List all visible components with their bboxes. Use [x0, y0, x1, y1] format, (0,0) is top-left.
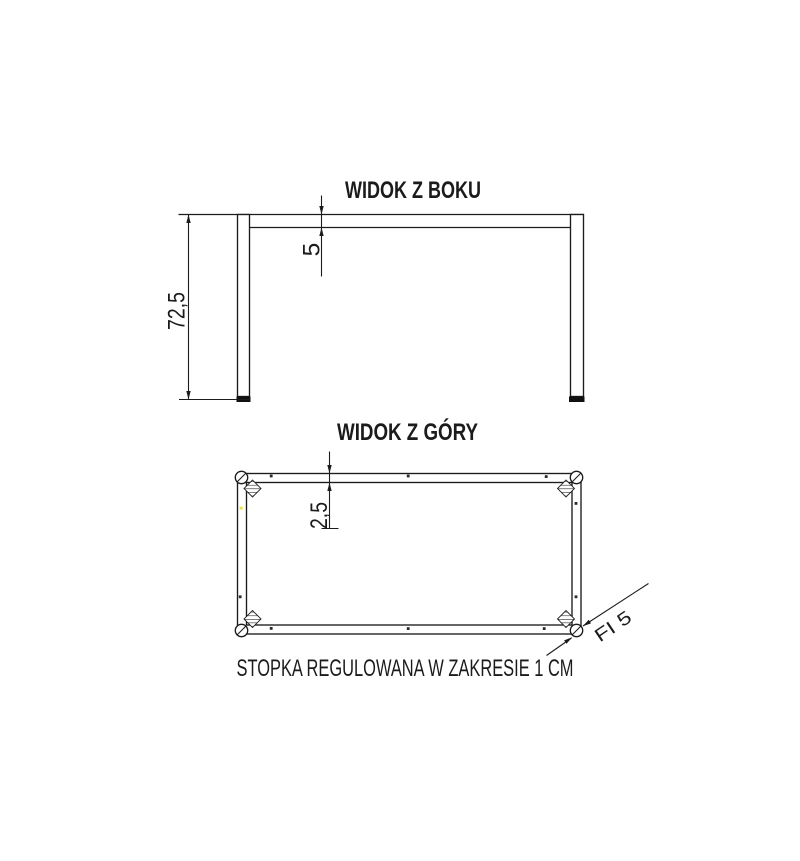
- height-arrow-up: [186, 215, 190, 224]
- mounting-hole-dot: [270, 627, 273, 630]
- thickness-dimension-label: 5: [299, 243, 326, 257]
- mounting-hole-dot: [239, 595, 242, 598]
- top-view: WIDOK Z GÓRY: [235, 418, 648, 656]
- mounting-hole-dot: [270, 475, 273, 478]
- caption-text: STOPKA REGULOWANA W ZAKRESIE 1 CM: [237, 655, 574, 682]
- mounting-hole-dot: [545, 475, 548, 478]
- table-frame-drawing: WIDOK Z BOKU 72,5 5 WIDOK Z GÓRY: [0, 0, 800, 861]
- height-dimension-label: 72,5: [164, 292, 191, 330]
- mounting-hole-dot: [543, 627, 546, 630]
- right-leg: [571, 215, 584, 397]
- depth-dimension-label: 2,5: [306, 502, 333, 529]
- depth-arrow-down: [327, 465, 331, 474]
- right-foot-glide: [569, 397, 585, 403]
- mounting-hole-dot: [407, 475, 410, 478]
- height-arrow-down: [186, 391, 190, 400]
- left-leg: [238, 215, 250, 397]
- technical-drawing-canvas: WIDOK Z BOKU 72,5 5 WIDOK Z GÓRY: [0, 0, 800, 861]
- mounting-hole-dot: [407, 627, 410, 630]
- foot-diameter-arrow-upper: [583, 620, 591, 626]
- top-view-title: WIDOK Z GÓRY: [337, 418, 478, 446]
- thickness-arrow-down: [319, 206, 323, 215]
- top-view-frame-inner: [247, 483, 573, 626]
- mounting-hole-dot-yellow: [240, 507, 243, 510]
- mounting-hole-dot: [575, 502, 578, 505]
- mounting-hole-dot: [575, 595, 578, 598]
- side-view-title: WIDOK Z BOKU: [345, 177, 481, 204]
- thickness-arrow-up: [319, 228, 323, 237]
- side-view: WIDOK Z BOKU 72,5 5: [164, 177, 585, 402]
- foot-diameter-label: FI 5: [590, 606, 635, 646]
